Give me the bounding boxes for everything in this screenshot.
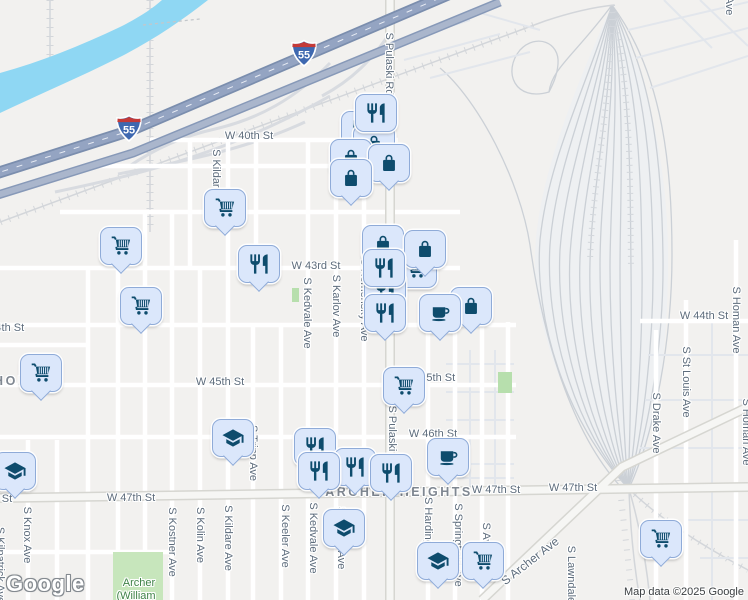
interstate-55-shield: 55	[291, 40, 318, 73]
shopping-cart-icon	[214, 197, 237, 220]
bag-pin[interactable]	[368, 144, 410, 182]
cart-pin[interactable]	[462, 542, 504, 580]
interstate-shield-icon: 55	[116, 115, 143, 143]
street-label: W 45th St	[196, 376, 244, 388]
restaurant-pin[interactable]	[363, 249, 405, 287]
cart-pin[interactable]	[640, 520, 682, 558]
street-label: S Homan Ave	[730, 286, 742, 353]
cafe-pin[interactable]	[427, 438, 469, 476]
interstate-shield-icon: 55	[291, 40, 318, 68]
cart-pin[interactable]	[383, 367, 425, 405]
street-label: S Pulaski Rd	[383, 33, 395, 96]
school-pin[interactable]	[417, 542, 459, 580]
shopping-cart-icon	[393, 375, 416, 398]
cart-pin[interactable]	[100, 227, 142, 265]
cafe-icon	[429, 302, 452, 325]
shopping-cart-icon	[472, 550, 495, 573]
restaurant-pin[interactable]	[298, 452, 340, 490]
street-label: W 47th St	[107, 492, 155, 504]
shopping-bag-icon	[460, 295, 483, 318]
restaurant-icon	[248, 253, 271, 276]
svg-text:55: 55	[298, 50, 310, 62]
street-label: W 47th St	[549, 482, 597, 494]
street-label: W 43rd St	[292, 260, 341, 272]
street-label: S Homan Ave	[740, 398, 748, 465]
school-icon	[222, 427, 245, 450]
street-label: S Kedvale Ave	[301, 277, 313, 348]
street-label: S Kostner Ave	[166, 507, 178, 577]
restaurant-pin[interactable]	[238, 245, 280, 283]
school-pin[interactable]	[212, 419, 254, 457]
street-label: S Kolin Ave	[194, 507, 206, 563]
map-canvas[interactable]: W 40th StW 43rd StW 44th StW 44th StW 45…	[0, 0, 748, 600]
restaurant-icon	[374, 302, 397, 325]
cafe-pin[interactable]	[419, 294, 461, 332]
street-label: S Kedvale Ave	[307, 502, 319, 573]
svg-text:55: 55	[123, 125, 135, 137]
street-label: S Keeler Ave	[279, 504, 291, 567]
restaurant-icon	[380, 462, 403, 485]
cafe-icon	[437, 446, 460, 469]
school-icon	[427, 550, 450, 573]
street-label: S Lawndale Ave	[565, 546, 577, 600]
school-icon	[4, 460, 27, 483]
park-label: Archer	[123, 577, 155, 589]
school-icon	[333, 517, 356, 540]
street-label: W 47th St	[472, 484, 520, 496]
google-logo[interactable]: Google	[6, 571, 85, 597]
shopping-bag-icon	[414, 238, 437, 261]
cart-pin[interactable]	[120, 287, 162, 325]
restaurant-icon	[365, 102, 388, 125]
restaurant-pin[interactable]	[364, 294, 406, 332]
restaurant-icon	[344, 456, 367, 479]
restaurant-pin[interactable]	[355, 94, 397, 132]
street-label: S Kildare Ave	[222, 505, 234, 571]
street-label: S St Louis Ave	[680, 346, 692, 417]
bag-pin[interactable]	[404, 230, 446, 268]
street-label: W 40th St	[225, 130, 273, 142]
school-pin[interactable]	[0, 452, 36, 490]
shopping-cart-icon	[130, 295, 153, 318]
restaurant-icon	[308, 460, 331, 483]
restaurant-pin[interactable]	[370, 454, 412, 492]
street-label: W 44th St	[680, 310, 728, 322]
bag-pin[interactable]	[330, 159, 372, 197]
shopping-bag-icon	[340, 167, 363, 190]
street-label: S Knox Ave	[21, 507, 33, 564]
shopping-bag-icon	[378, 152, 401, 175]
street-label: S Karlov Ave	[330, 275, 342, 338]
street-label: W 44th St	[0, 322, 24, 334]
interstate-55-shield: 55	[116, 115, 143, 148]
map-attribution[interactable]: Map data ©2025 Google	[624, 586, 744, 598]
street-label: S Drake Ave	[650, 393, 662, 454]
street-label: Ave	[723, 0, 735, 15]
cart-pin[interactable]	[204, 189, 246, 227]
cart-pin[interactable]	[20, 354, 62, 392]
school-pin[interactable]	[323, 509, 365, 547]
shopping-cart-icon	[110, 235, 133, 258]
shopping-cart-icon	[30, 362, 53, 385]
restaurant-icon	[373, 257, 396, 280]
park-label: (William	[116, 590, 155, 600]
shopping-cart-icon	[650, 528, 673, 551]
